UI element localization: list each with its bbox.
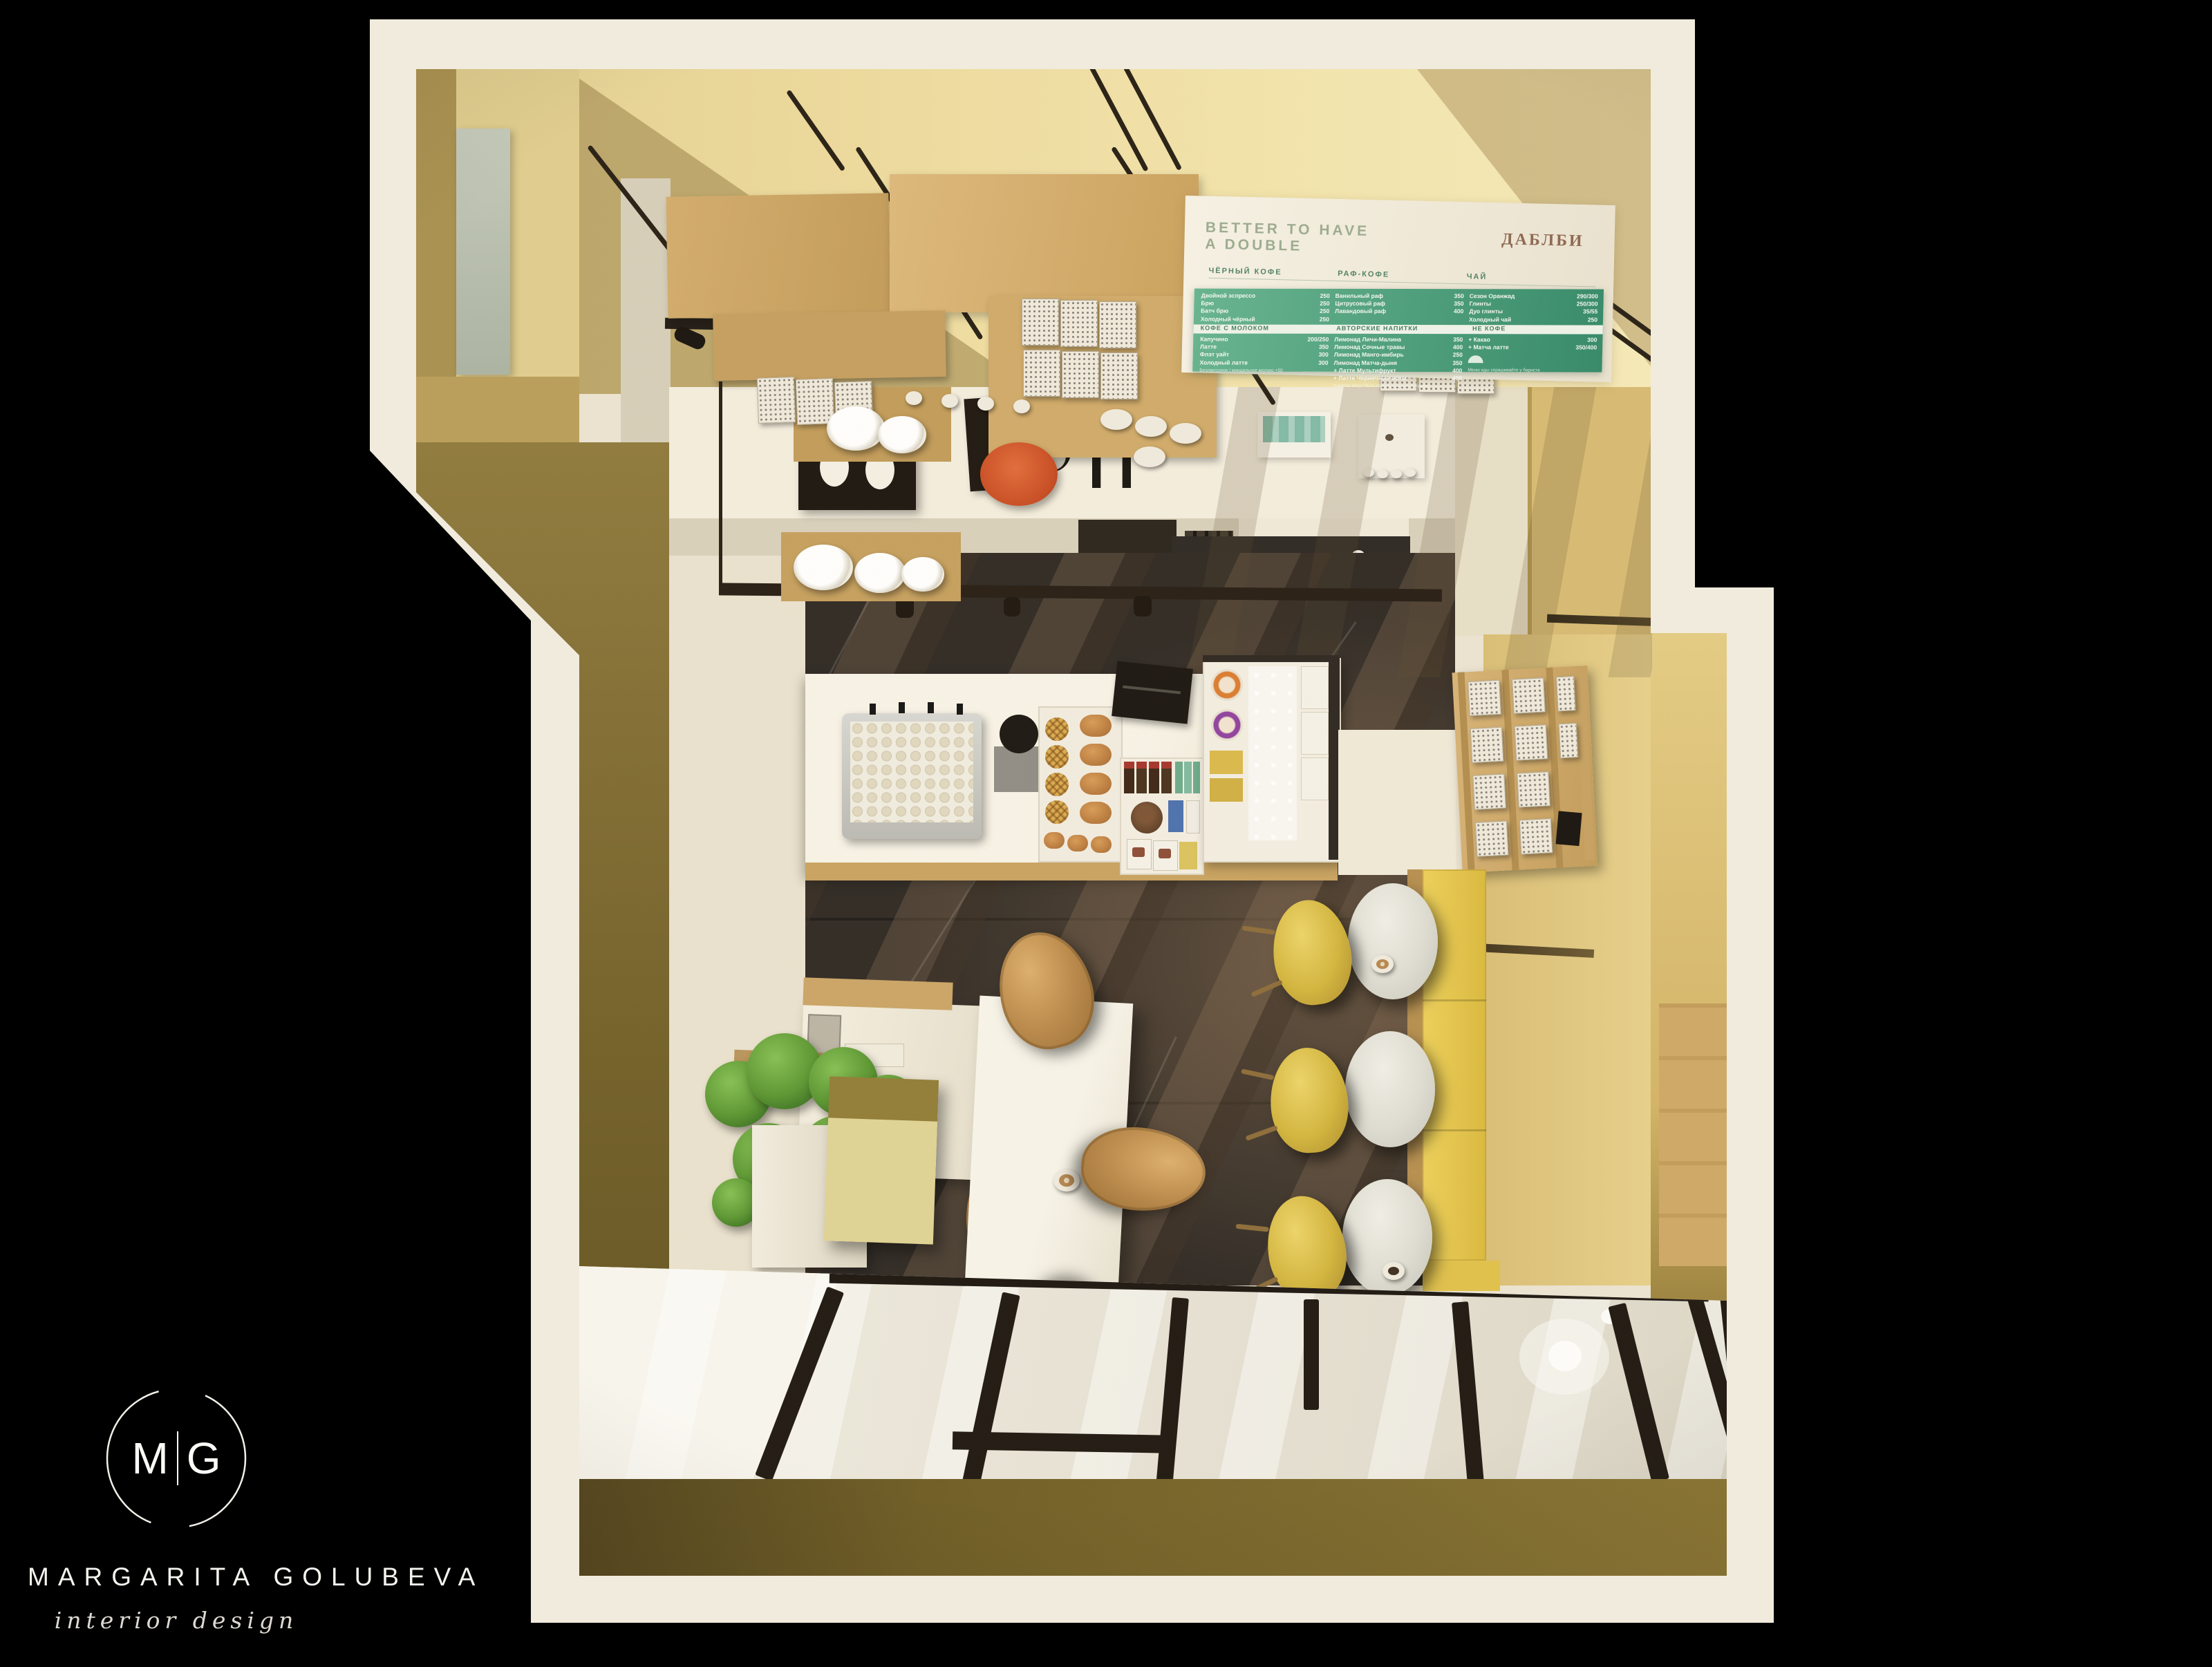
small-cup [906, 391, 922, 405]
croissant-small [1044, 832, 1065, 849]
menu-item-label: Лимонад Манго-имбирь [1334, 351, 1404, 359]
menu-item-label: + Матча латте [1468, 343, 1509, 351]
menu-item-price: 350 [1452, 359, 1462, 367]
latte-cup [1371, 955, 1394, 973]
small-cup [977, 397, 994, 411]
croissant [1080, 715, 1112, 737]
hanging-shelf-board [666, 193, 890, 319]
group-head-knob [870, 704, 876, 715]
logo-divider [177, 1431, 178, 1485]
plate-stack [827, 406, 885, 451]
menu-item-label: Холодный чёрный [1201, 315, 1255, 323]
espresso-machine-cup-tray [850, 722, 973, 822]
menu-item-price: 250 [1320, 315, 1329, 323]
chocolate-bar [1136, 762, 1147, 793]
sunlight-shadow-overlay [1175, 387, 1652, 677]
banquette-end [1423, 1261, 1500, 1291]
menu-item-label: Латте [1200, 343, 1217, 351]
green-tea-pack [1193, 762, 1200, 793]
menu-column: Лимонад Личи-Малина350Лимонад Сочные тра… [1333, 336, 1463, 389]
menu-item-price: 290/300 [1577, 292, 1598, 300]
menu-board: BETTER TO HAVE A DOUBLE ДАБЛБИ ЧЁРНЫЙ КО… [1181, 196, 1615, 382]
cake-orange-ring [1211, 669, 1243, 701]
counter-ledge-right [1338, 730, 1456, 875]
coffee-bag [1468, 680, 1501, 716]
menu-footnote: Меню еды спрашивайте у бариста [1468, 368, 1596, 373]
cafe-top-down-render: BETTER TO HAVE A DOUBLE ДАБЛБИ ЧЁРНЫЙ КО… [0, 0, 2212, 1667]
latte-cup [1053, 1169, 1080, 1192]
green-tea-pack [1184, 762, 1192, 793]
menu-item: Дуо глинты35/55 [1469, 308, 1597, 317]
logo-initial-m: M [131, 1433, 168, 1484]
group-head-knob [957, 704, 963, 715]
case-top-edge [1203, 655, 1338, 662]
chocolate-bar [1149, 762, 1159, 793]
case-tray [1301, 757, 1329, 800]
menu-item-label: Дуо глинты [1469, 308, 1503, 316]
menu-item-price: 350 [1454, 292, 1463, 300]
menu-section-title: НЕ КОФЕ [1472, 325, 1603, 334]
case-glass-shelf [1248, 666, 1297, 840]
menu-item-price: 250 [1320, 300, 1329, 308]
cup-box [1099, 301, 1136, 348]
white-cup [1135, 416, 1167, 437]
menu-item-label: Батч брю [1201, 308, 1228, 315]
mustard-side-table [824, 1076, 939, 1244]
menu-item-price: 35/55 [1583, 308, 1598, 316]
menu-section-titles: ЧЁРНЫЙ КОФЕ РАФ-КОФЕ ЧАЙ [1208, 267, 1595, 288]
menu-item-price: 250 [1320, 308, 1329, 315]
menu-item: + Латте Мультифрукт400 [1333, 367, 1462, 375]
menu-item-label: Лимонад Сочные травы [1334, 343, 1405, 351]
mustard-table-top [824, 1118, 937, 1244]
menu-item-label: + Латте Мультифрукт [1333, 367, 1396, 375]
coffee-bag [1470, 727, 1504, 763]
menu-item-label: Ванильный раф [1335, 292, 1383, 300]
menu-item-label: Холодный чай [1469, 316, 1511, 323]
menu-headline: BETTER TO HAVE A DOUBLE [1205, 220, 1369, 257]
dessert-box-label [1132, 847, 1145, 857]
white-cup [1134, 446, 1165, 467]
menu-item: Латте350 [1200, 343, 1329, 352]
white-cup [1100, 409, 1132, 430]
chocolate-bar [1124, 762, 1134, 793]
menu-item-price: 250 [1453, 352, 1463, 359]
menu-item: + Какао300 [1468, 336, 1597, 344]
small-cup [1013, 399, 1030, 413]
nook-fridge [456, 129, 510, 375]
merch-shelf [1452, 666, 1598, 873]
cup-box [757, 377, 796, 424]
chocolate-bar [1161, 762, 1172, 793]
coffee-cup [1382, 1262, 1405, 1280]
cup-box [1022, 299, 1059, 346]
menu-item: Батч брю250 [1201, 308, 1329, 316]
menu-item: + Латте Черничные ноты400 [1333, 375, 1462, 383]
menu-item-price: 250/300 [1577, 301, 1598, 308]
case-tray [1301, 666, 1329, 709]
hanging-shelf-board-long [890, 174, 1199, 312]
lemon-tart [1210, 778, 1243, 802]
menu-item: Холодный чёрный250 [1201, 315, 1329, 323]
menu-item: Ванильный раф350 [1335, 292, 1464, 301]
logo-monogram: M G [97, 1379, 256, 1538]
logo-ring: M G [97, 1379, 256, 1538]
chocolate-tart [1131, 802, 1163, 833]
menu-items: + Какао300+ Матча латте350/400 [1468, 336, 1597, 352]
menu-item-label: Сезон Оранжад [1470, 292, 1515, 300]
waffle-cookie [1045, 745, 1069, 769]
coffee-bag [1556, 676, 1576, 711]
glass-partition-edge [719, 382, 722, 589]
reflected-lamp [1548, 1341, 1582, 1371]
croissant-small [1067, 835, 1088, 851]
menu-item: Двойной эспрессо250 [1201, 292, 1330, 301]
hanging-shelf-tier2 [713, 310, 946, 381]
menu-item: Лимонад Матча-дыня350 [1333, 359, 1462, 367]
menu-item-label: Капучино [1200, 336, 1228, 343]
plate [854, 553, 906, 593]
menu-section-title: ЧЁРНЫЙ КОФЕ [1208, 267, 1338, 278]
coffee-bag [1475, 820, 1509, 856]
menu-item: Флэт уайт300 [1200, 351, 1329, 359]
croissant-small [1091, 836, 1112, 853]
menu-item: + Матча латте350/400 [1468, 343, 1597, 352]
plate [794, 545, 853, 590]
window-mullion-short [1304, 1299, 1319, 1410]
menu-section-title: ЧАЙ [1467, 272, 1596, 283]
menu-item-label: Брю [1201, 300, 1214, 308]
counter-grinder [1000, 715, 1038, 753]
plate [901, 557, 944, 592]
menu-item: Лимонад Манго-имбирь250 [1334, 351, 1463, 359]
menu-item-price: 350 [1453, 336, 1463, 343]
menu-item-price: 350 [1454, 300, 1463, 308]
croissant [1080, 773, 1112, 795]
logo-initial-g: G [187, 1433, 221, 1484]
menu-item-label: + Латте Черничные ноты [1333, 375, 1407, 382]
menu-section-title: РАФ-КОФЕ [1338, 270, 1467, 281]
menu-item-price: 350/400 [1575, 344, 1597, 352]
coffee-bag [1515, 724, 1548, 760]
menu-item-label: Лимонад Матча-дыня [1333, 359, 1397, 366]
menu-item-label: Лимонад Личи-Малина [1334, 336, 1401, 343]
orange-bowl [980, 442, 1058, 506]
coffee-bag [1472, 774, 1506, 810]
menu-item-price: 200/250 [1307, 336, 1329, 343]
window-crossbar [953, 1431, 1168, 1453]
cup-box [1100, 352, 1138, 399]
menu-brand-logo: ДАБЛБИ [1501, 230, 1584, 251]
cash-register [1112, 661, 1193, 724]
menu-item: Лимонад Личи-Малина350 [1334, 336, 1463, 344]
coffee-bag [1517, 771, 1550, 807]
group-head-knob [899, 702, 905, 713]
mustard-table-shadow-face [828, 1076, 939, 1124]
menu-item: Лавандовый раф400 [1335, 308, 1463, 316]
group-head-knob [928, 702, 934, 713]
banquette-seam [1423, 999, 1486, 1001]
menu-item-price: 300 [1318, 359, 1328, 366]
menu-item: Брю250 [1201, 300, 1329, 308]
designer-name: MARGARITA GOLUBEVA [28, 1563, 325, 1592]
menu-item-label: Флэт уайт [1200, 351, 1230, 359]
menu-green-panel: Двойной эспрессо250Брю250Батч брю250Холо… [1192, 289, 1604, 373]
menu-column: + Какао300+ Матча латте350/400 Меню еды … [1468, 336, 1597, 389]
menu-footnote: Безлактозное / миндальное молоко +50 [1199, 368, 1328, 373]
cloche-icon [1468, 356, 1483, 364]
green-tea-pack [1175, 762, 1183, 793]
cup-box [1023, 350, 1060, 397]
menu-item-label: Глинты [1469, 300, 1491, 308]
menu-footnote: Напитки могут быть приготовлены холодным… [1333, 384, 1462, 388]
cup-box [1062, 351, 1099, 398]
small-cup [941, 394, 958, 408]
menu-stripe-titles: КОФЕ С МОЛОКОМ АВТОРСКИЕ НАПИТКИ НЕ КОФЕ [1193, 324, 1602, 334]
menu-item-label: Двойной эспрессо [1201, 292, 1256, 300]
wood-floor-strip-right [1659, 1004, 1727, 1266]
menu-item-price: 350 [1319, 343, 1329, 351]
coffee-bag [1519, 818, 1553, 854]
menu-item: Капучино200/250 [1200, 336, 1329, 344]
front-counter-wood-trim [805, 863, 1338, 880]
menu-item-label: Лавандовый раф [1335, 308, 1386, 315]
croissant [1080, 802, 1112, 824]
menu-section-title: АВТОРСКИЕ НАПИТКИ [1336, 325, 1467, 334]
menu-item-price: 300 [1587, 336, 1597, 343]
track-fixture [1134, 596, 1152, 616]
menu-item-label: Холодный латте [1199, 359, 1248, 366]
waffle-cookie [1045, 717, 1069, 741]
menu-item-price: 400 [1452, 375, 1462, 382]
menu-item: Сезон Оранжад290/300 [1470, 292, 1598, 301]
menu-item-price: 400 [1452, 367, 1462, 375]
lemon-tart [1210, 751, 1243, 774]
menu-item-label: + Какао [1468, 336, 1490, 343]
white-box [1186, 800, 1200, 833]
menu-item-price: 250 [1588, 316, 1597, 323]
menu-item: Цитрусовый раф350 [1335, 300, 1463, 308]
menu-item-price: 250 [1320, 292, 1329, 300]
menu-item-label: Цитрусовый раф [1335, 300, 1385, 308]
designer-logo: M G MARGARITA GOLUBEVA interior design [28, 1379, 325, 1634]
storefront-glass [579, 1263, 1728, 1486]
menu-item: Холодный латте300 [1199, 359, 1328, 367]
doorway-opening [1078, 520, 1177, 554]
menu-item-price: 300 [1318, 351, 1328, 359]
round-cafe-table [1345, 1031, 1435, 1147]
waffle-cookie [1045, 773, 1069, 796]
white-cup [1170, 423, 1201, 444]
menu-items: Лимонад Личи-Малина350Лимонад Сочные тра… [1333, 336, 1463, 383]
blue-pack [1168, 800, 1183, 832]
case-tray [1301, 712, 1329, 755]
menu-item: Глинты250/300 [1469, 300, 1597, 308]
menu-band-2: Капучино200/250Латте350Флэт уайт300Холод… [1199, 336, 1597, 389]
menu-items: Капучино200/250Латте350Флэт уайт300Холод… [1199, 336, 1329, 367]
menu-section-title: КОФЕ С МОЛОКОМ [1200, 325, 1331, 334]
black-drip-bag [1556, 811, 1582, 846]
wall-olive-bottom [579, 1479, 1728, 1577]
yellow-pack [1179, 842, 1197, 869]
dessert-box-label [1159, 849, 1171, 858]
latte-coffee [1376, 959, 1389, 969]
black-coffee [1388, 1267, 1399, 1275]
coffee-bag [1512, 677, 1546, 713]
menu-column: Капучино200/250Латте350Флэт уайт300Холод… [1199, 336, 1329, 389]
latte-coffee [1059, 1174, 1074, 1187]
menu-item-price: 400 [1453, 343, 1463, 351]
cake-purple-ring [1211, 709, 1243, 741]
cabinet-wood-top [803, 977, 953, 1010]
croissant [1080, 744, 1112, 766]
cup-box [1060, 300, 1098, 347]
cup-box [796, 378, 834, 425]
menu-item: Холодный чай250 [1469, 316, 1597, 324]
round-cafe-table [1348, 883, 1438, 999]
menu-item-price: 400 [1454, 308, 1463, 316]
plate-stack [878, 416, 926, 453]
waffle-cookie [1045, 800, 1069, 824]
menu-item: Лимонад Сочные травы400 [1334, 343, 1463, 352]
designer-tagline: interior design [28, 1607, 325, 1634]
banquette-seam [1423, 1129, 1486, 1131]
track-fixture [1004, 597, 1020, 616]
coffee-bag [1559, 723, 1579, 758]
